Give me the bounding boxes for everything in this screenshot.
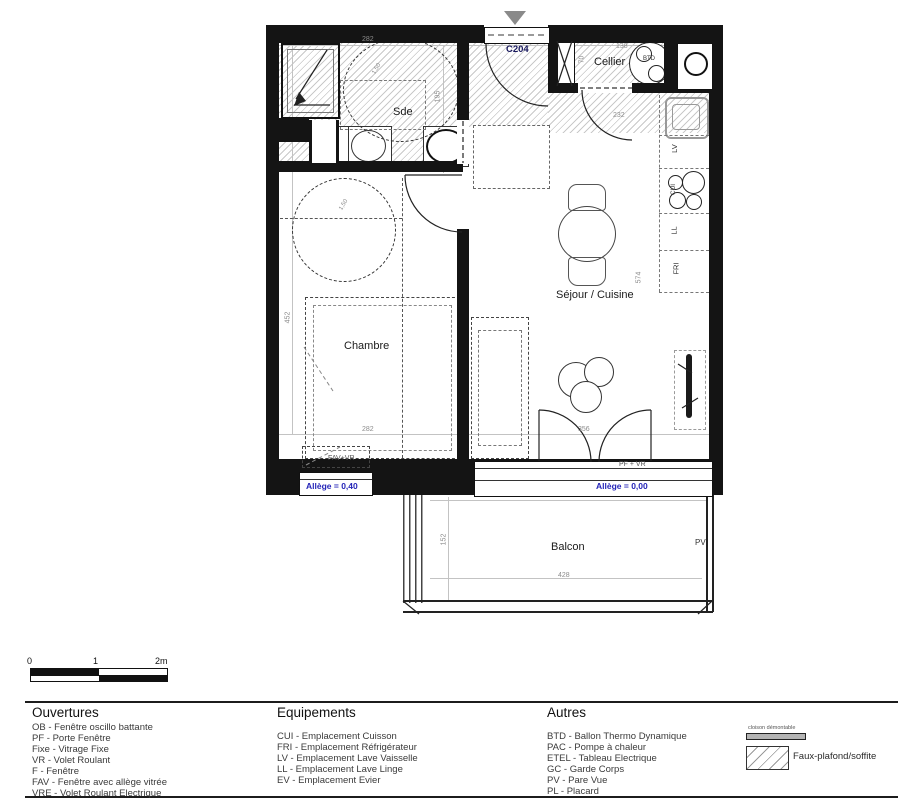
duct-shaft [556, 40, 575, 89]
scale-tick-1: 1 [93, 656, 98, 666]
chair-bottom [568, 257, 606, 286]
room-label-chambre: Chambre [344, 340, 389, 352]
dim-line-balcon-v [448, 497, 449, 600]
room-label-sejour: Séjour / Cuisine [556, 289, 634, 301]
dim-balcon-depth: 152 [440, 534, 447, 546]
legend-items-ouvertures: OB - Fenêtre oscillo battante PF - Porte… [32, 722, 167, 799]
counter-sep-3 [659, 213, 709, 214]
label-pf-vr: PF + VR [619, 461, 646, 468]
balcon-top-line [430, 500, 706, 501]
balcony-screen-left [403, 495, 425, 603]
legend-item: VRE - Volet Roulant Electrique [32, 788, 167, 799]
bed-inner [313, 305, 452, 451]
allege-right-label: Allège = 0,00 [596, 481, 648, 491]
legend-item: EV - Emplacement Evier [277, 775, 418, 786]
label-fav-vr: FAV+VR [328, 455, 355, 462]
window-right-line1 [475, 468, 712, 469]
balcony-rail-bottom-2 [403, 611, 713, 613]
wall-cellier-right [664, 25, 677, 87]
chambre-door-swing [405, 175, 462, 232]
legend-item: PV - Pare Vue [547, 775, 687, 786]
legend-item: PL - Placard [547, 786, 687, 797]
sde-turning-circle [343, 38, 459, 142]
kitchen-sink-top-bowl [684, 52, 708, 76]
label-lv: LV [670, 144, 679, 153]
counter-sep-4 [659, 250, 709, 251]
french-door-right-swing [599, 410, 651, 462]
legend-item: VR - Volet Roulant [32, 755, 167, 766]
legend-top-rule [25, 701, 898, 703]
balcony-rail-right-1 [706, 495, 708, 612]
dim-cellier-width: 138 [616, 43, 628, 50]
radiator-bar [686, 354, 692, 418]
legend-title-autres: Autres [547, 705, 586, 720]
legend-item: PF - Porte Fenêtre [32, 733, 167, 744]
french-door-left-swing [539, 410, 591, 462]
plant-circle-3 [570, 381, 602, 413]
sde-door-opening [457, 120, 469, 164]
label-pv: PV [695, 538, 706, 547]
wall-shower-stub [279, 118, 309, 142]
dining-table [558, 206, 616, 262]
window-left-line [300, 479, 372, 480]
scale-bar [30, 668, 168, 682]
label-fri: FRI [672, 262, 681, 274]
balcony-rail-right-2 [712, 495, 714, 612]
shower-tray-inner [287, 49, 334, 113]
legend-item: PAC - Pompe à chaleur [547, 742, 687, 753]
legend-items-equipements: CUI - Emplacement Cuisson FRI - Emplacem… [277, 731, 418, 786]
dim-hall-door: 232 [613, 112, 625, 119]
btd-tank-pipe2 [648, 65, 665, 82]
legend-item: CUI - Emplacement Cuisson [277, 731, 418, 742]
allege-left-label: Allège = 0,40 [306, 481, 358, 491]
unit-number-label: C204 [506, 44, 529, 55]
wall-top-right [548, 25, 712, 43]
duct-niche [309, 120, 339, 163]
dim-cellier-depth: 70 [578, 56, 585, 64]
kitchen-sink-inner [672, 104, 700, 130]
dim-sde-depth: 195 [434, 91, 441, 103]
room-label-balcon: Balcon [551, 541, 585, 553]
balcony-rail-bottom-1 [403, 600, 713, 602]
legend-item: Fixe - Vitrage Fixe [32, 744, 167, 755]
burner-2 [682, 171, 705, 194]
dim-balcon-width: 428 [558, 572, 570, 579]
label-cui: CUI [670, 184, 677, 195]
legend-item: GC - Garde Corps [547, 764, 687, 775]
shower-tray [281, 43, 340, 119]
counter-edge [659, 95, 660, 292]
legend-cloison-symbol [746, 733, 806, 740]
dim-bay-width: 356 [578, 426, 590, 433]
dim-sejour-height: 574 [635, 272, 642, 284]
wall-chambre-sejour [457, 229, 469, 459]
room-label-sde: Sde [393, 106, 413, 118]
wall-left [266, 25, 279, 495]
chambre-turning-circle [292, 178, 396, 282]
scale-tick-2: 2m [155, 656, 168, 666]
legend-title-equipements: Equipements [277, 705, 356, 720]
entrance-door-dash [488, 34, 544, 36]
kitchen-sink [665, 97, 709, 139]
entrance-door [484, 27, 550, 44]
counter-sep-1 [659, 135, 709, 136]
legend-item: FAV - Fenêtre avec allège vitrée [32, 777, 167, 788]
btd-label: BTD [643, 56, 655, 62]
legend-title-ouvertures: Ouvertures [32, 705, 99, 720]
wall-right [709, 25, 723, 495]
window-right-line2 [475, 480, 712, 481]
legend-item: LL - Emplacement Lave Linge [277, 764, 418, 775]
window-right [474, 461, 713, 497]
chambre-axis-h [280, 218, 402, 219]
label-ll: LL [670, 226, 679, 234]
legend-item: F - Fenêtre [32, 766, 167, 777]
scale-bar-midline [31, 675, 167, 676]
hall-ceiling-drop [473, 125, 550, 189]
burner-4 [686, 194, 702, 210]
sofa-inner [478, 330, 522, 446]
floor-plan-page: C204 BTD [0, 0, 923, 800]
dim-chambre-width: 282 [362, 426, 374, 433]
kitchen-sink-top [677, 43, 713, 90]
wall-hall-left [457, 43, 469, 120]
wall-top-left [266, 25, 484, 43]
legend-item: BTD - Ballon Thermo Dynamique [547, 731, 687, 742]
hatch-entrance-hall [469, 43, 548, 127]
legend-items-autres: BTD - Ballon Thermo Dynamique PAC - Pomp… [547, 731, 687, 797]
legend-cloison-label: cloison démontable [748, 725, 795, 731]
counter-sep-2 [659, 168, 709, 169]
wall-sde-bottom [279, 161, 463, 172]
counter-sep-5 [659, 292, 709, 293]
legend-item: ETEL - Tableau Electrique [547, 753, 687, 764]
legend-item: OB - Fenêtre oscillo battante [32, 722, 167, 733]
cellier-door-opening [578, 83, 632, 93]
legend-faux-plafond-symbol [746, 746, 789, 770]
entrance-arrow-icon [504, 11, 526, 25]
dim-chambre-height: 452 [284, 312, 291, 324]
legend-faux-plafond-label: Faux-plafond/soffite [793, 751, 876, 762]
dim-sde-width: 282 [362, 36, 374, 43]
scale-tick-0: 0 [27, 656, 32, 666]
room-label-cellier: Cellier [594, 56, 625, 68]
legend-item: FRI - Emplacement Réfrigérateur [277, 742, 418, 753]
legend-item: LV - Emplacement Lave Vaisselle [277, 753, 418, 764]
chair-top [568, 184, 606, 211]
